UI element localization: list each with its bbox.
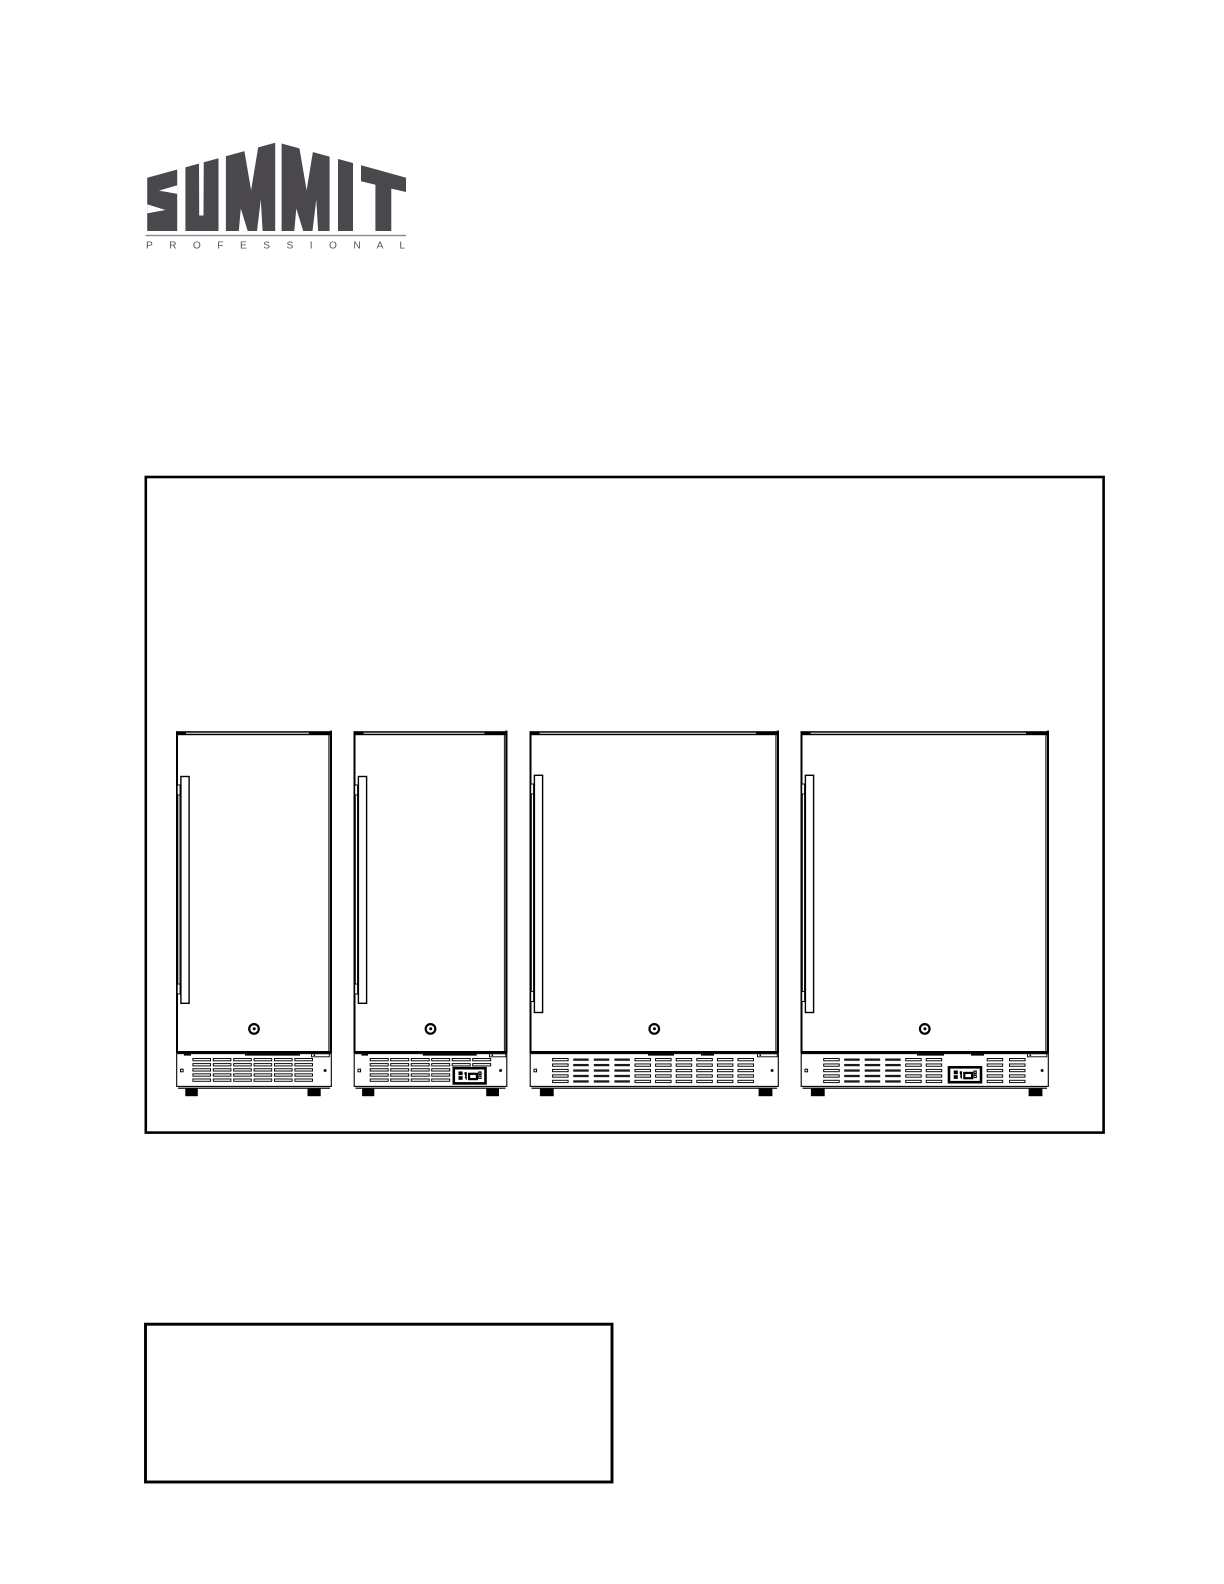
- svg-text:P R O F E S S I O N A L: P R O F E S S I O N A L: [146, 240, 405, 251]
